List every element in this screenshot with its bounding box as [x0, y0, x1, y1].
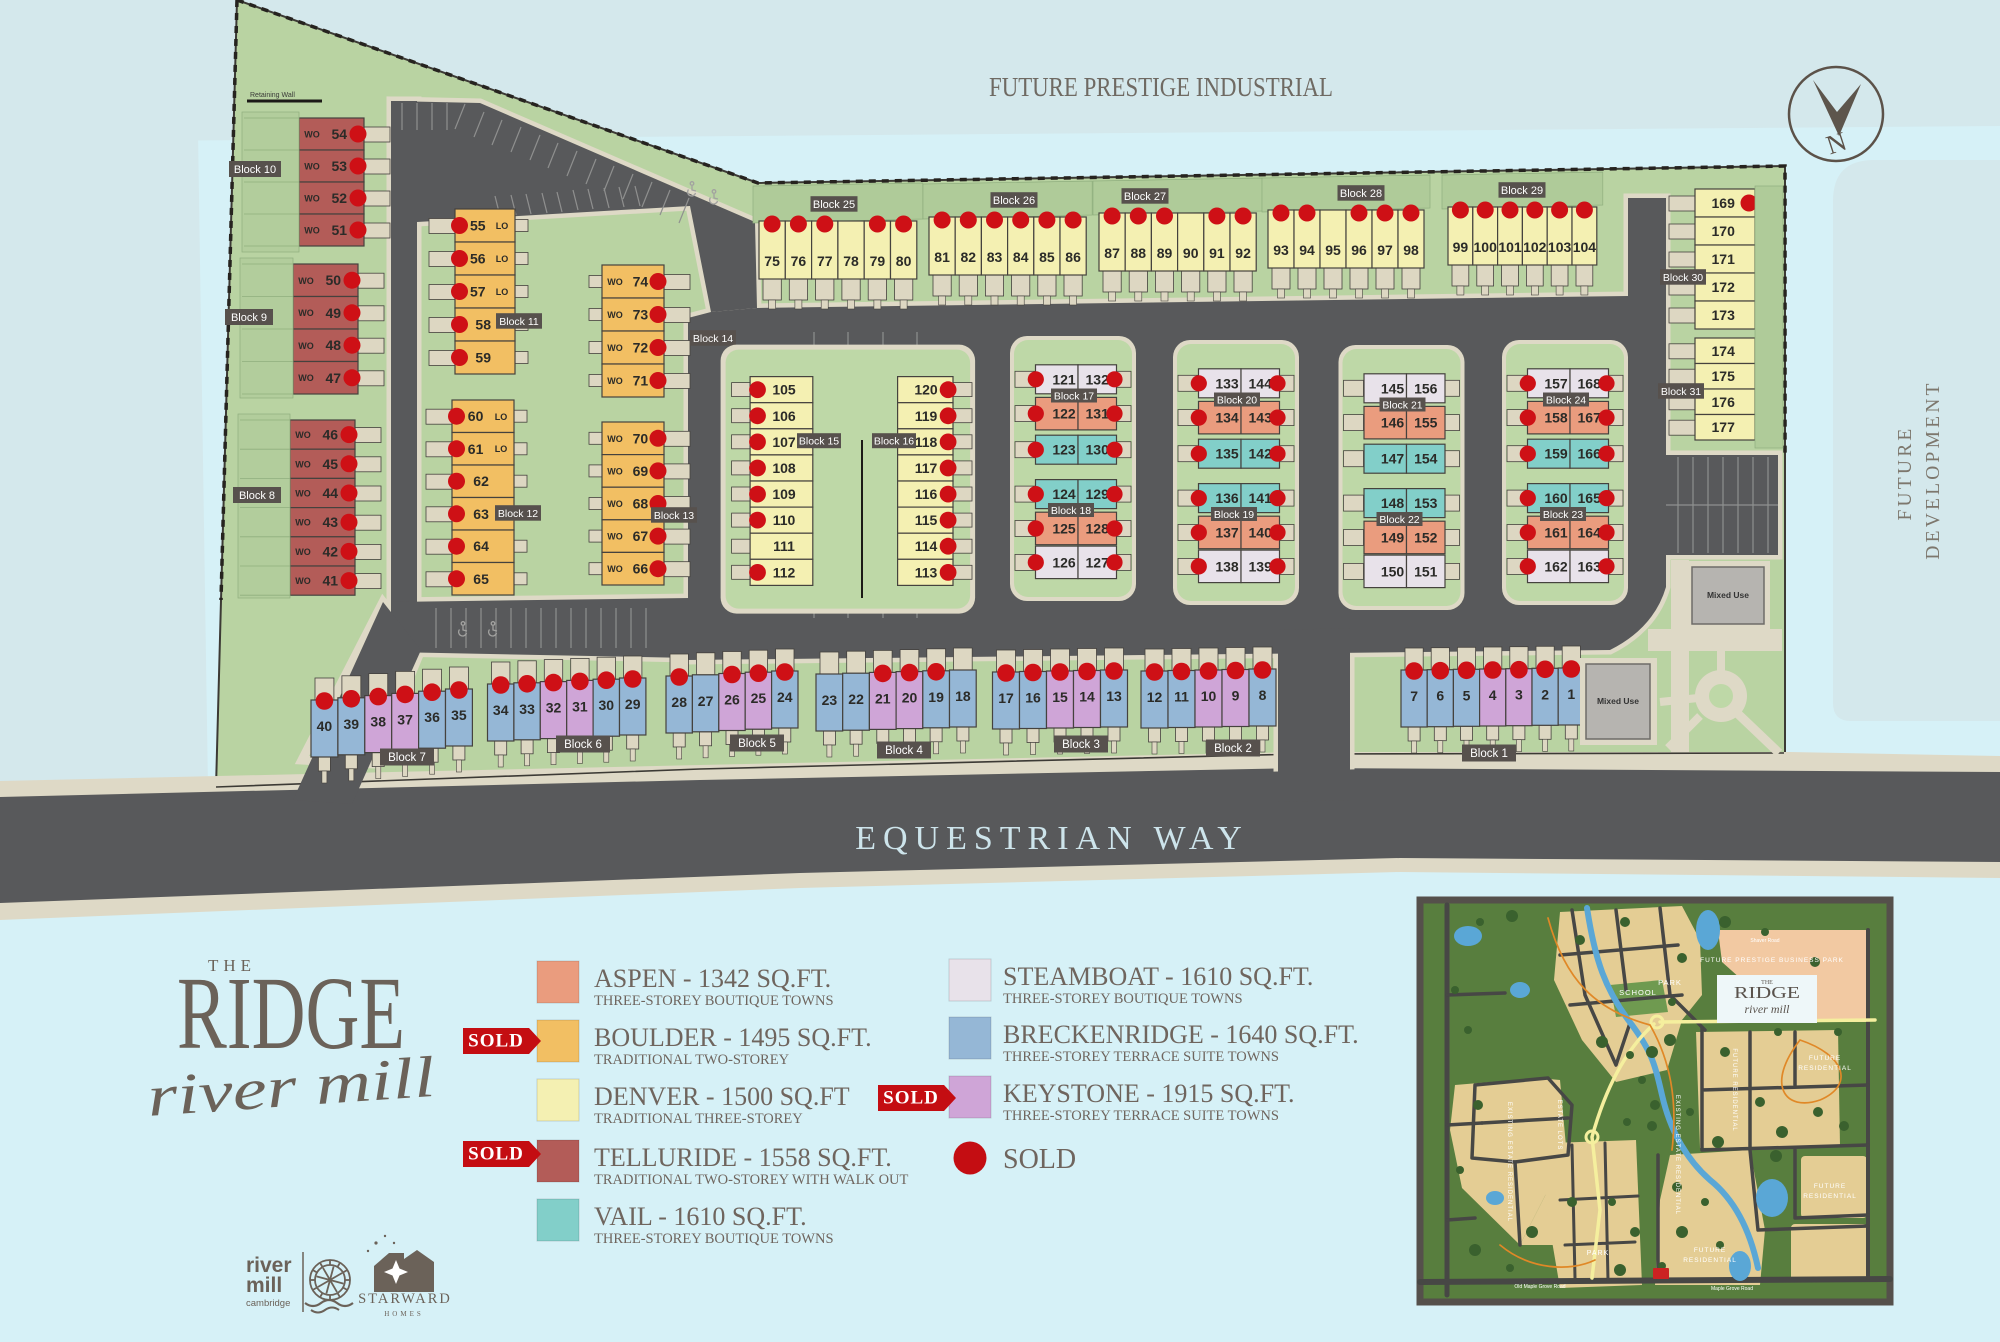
- svg-text:68: 68: [633, 496, 649, 512]
- svg-text:155: 155: [1414, 415, 1438, 431]
- svg-text:Block 25: Block 25: [813, 199, 855, 211]
- svg-text:102: 102: [1523, 239, 1547, 255]
- svg-text:101: 101: [1498, 239, 1522, 255]
- svg-text:73: 73: [633, 307, 649, 323]
- svg-text:HOMES: HOMES: [384, 1310, 424, 1318]
- svg-text:69: 69: [633, 463, 649, 479]
- svg-text:175: 175: [1712, 368, 1736, 384]
- svg-text:60: 60: [468, 408, 484, 424]
- svg-text:20: 20: [902, 690, 918, 706]
- svg-text:Block 14: Block 14: [693, 333, 733, 345]
- svg-text:BRECKENRIDGE - 1640 SQ.FT.: BRECKENRIDGE - 1640 SQ.FT.: [1003, 1020, 1359, 1049]
- svg-text:Block 21: Block 21: [1382, 400, 1422, 412]
- svg-text:Block 18: Block 18: [1051, 505, 1091, 517]
- svg-text:7: 7: [1410, 688, 1418, 704]
- svg-text:Block 2: Block 2: [1214, 743, 1252, 755]
- svg-text:10: 10: [1201, 688, 1217, 704]
- svg-text:river mill: river mill: [1745, 1002, 1791, 1016]
- svg-text:WO: WO: [607, 343, 623, 353]
- svg-text:44: 44: [323, 485, 339, 501]
- svg-text:38: 38: [370, 714, 386, 730]
- svg-text:114: 114: [915, 538, 938, 554]
- svg-text:WO: WO: [295, 489, 311, 499]
- svg-text:156: 156: [1414, 380, 1438, 396]
- svg-text:99: 99: [1453, 239, 1469, 255]
- svg-text:75: 75: [764, 253, 780, 269]
- svg-text:16: 16: [1025, 690, 1041, 706]
- svg-text:EQUESTRIAN WAY: EQUESTRIAN WAY: [855, 820, 1249, 857]
- svg-text:112: 112: [773, 564, 796, 580]
- svg-text:135: 135: [1215, 446, 1239, 462]
- svg-text:82: 82: [961, 249, 977, 265]
- svg-text:THREE-STOREY BOUTIQUE TOWNS: THREE-STOREY BOUTIQUE TOWNS: [594, 1231, 834, 1247]
- svg-text:LO: LO: [495, 412, 508, 422]
- svg-text:62: 62: [473, 473, 489, 489]
- svg-text:108: 108: [772, 460, 796, 476]
- svg-text:Block 1: Block 1: [1470, 748, 1508, 760]
- svg-text:12: 12: [1147, 689, 1163, 705]
- svg-text:171: 171: [1712, 251, 1736, 267]
- svg-text:96: 96: [1351, 242, 1367, 258]
- svg-text:80: 80: [896, 253, 912, 269]
- svg-text:47: 47: [326, 370, 342, 386]
- svg-text:Block 24: Block 24: [1546, 395, 1586, 407]
- svg-text:129: 129: [1086, 486, 1110, 502]
- svg-text:Block 9: Block 9: [231, 312, 267, 324]
- svg-text:105: 105: [772, 382, 796, 398]
- svg-text:WO: WO: [607, 310, 623, 320]
- svg-text:63: 63: [473, 506, 489, 522]
- svg-text:41: 41: [323, 573, 339, 589]
- svg-text:124: 124: [1052, 486, 1076, 502]
- svg-text:SOLD: SOLD: [468, 1144, 524, 1165]
- svg-text:ESTATE LOTS: ESTATE LOTS: [1556, 1100, 1562, 1151]
- svg-text:DEVELOPMENT: DEVELOPMENT: [1923, 380, 1944, 559]
- svg-text:123: 123: [1052, 442, 1076, 458]
- svg-text:81: 81: [934, 249, 950, 265]
- svg-text:9: 9: [1232, 688, 1240, 704]
- svg-text:166: 166: [1578, 446, 1602, 462]
- svg-text:WO: WO: [298, 341, 314, 351]
- svg-text:Mixed Use: Mixed Use: [1597, 696, 1639, 706]
- svg-text:Block 16: Block 16: [874, 436, 914, 448]
- svg-text:74: 74: [633, 274, 649, 290]
- svg-text:45: 45: [323, 456, 339, 472]
- svg-text:34: 34: [493, 702, 509, 718]
- svg-text:Block 10: Block 10: [234, 164, 276, 176]
- svg-text:PARK: PARK: [1587, 1250, 1610, 1257]
- svg-text:103: 103: [1548, 239, 1572, 255]
- svg-text:Mixed Use: Mixed Use: [1707, 590, 1749, 600]
- svg-text:Shaver Road: Shaver Road: [1750, 938, 1779, 944]
- svg-text:26: 26: [724, 692, 740, 708]
- svg-text:79: 79: [870, 253, 886, 269]
- svg-text:130: 130: [1086, 442, 1110, 458]
- svg-text:143: 143: [1249, 410, 1273, 426]
- svg-text:ASPEN - 1342 SQ.FT.: ASPEN - 1342 SQ.FT.: [594, 964, 831, 993]
- svg-text:46: 46: [323, 427, 339, 443]
- svg-text:94: 94: [1299, 242, 1315, 258]
- svg-text:167: 167: [1578, 410, 1602, 426]
- svg-text:76: 76: [791, 253, 807, 269]
- svg-text:100: 100: [1474, 239, 1498, 255]
- svg-text:24: 24: [777, 689, 793, 705]
- svg-text:48: 48: [326, 337, 342, 353]
- svg-text:FUTURE: FUTURE: [1694, 1247, 1726, 1254]
- svg-text:87: 87: [1104, 245, 1120, 261]
- svg-text:160: 160: [1544, 490, 1568, 506]
- svg-text:17: 17: [998, 690, 1014, 706]
- svg-text:Block 7: Block 7: [388, 752, 426, 764]
- svg-text:32: 32: [546, 700, 562, 716]
- svg-text:18: 18: [955, 688, 971, 704]
- svg-text:8: 8: [1259, 687, 1267, 703]
- svg-text:147: 147: [1381, 451, 1405, 467]
- svg-text:61: 61: [468, 441, 484, 457]
- svg-text:PARK: PARK: [1658, 978, 1682, 987]
- svg-text:140: 140: [1249, 525, 1273, 541]
- svg-text:WO: WO: [304, 194, 320, 204]
- svg-text:149: 149: [1381, 530, 1405, 546]
- svg-text:THREE-STOREY TERRACE SUITE TOW: THREE-STOREY TERRACE SUITE TOWNS: [1003, 1049, 1279, 1065]
- svg-text:29: 29: [625, 696, 641, 712]
- svg-text:FUTURE PRESTIGE INDUSTRIAL: FUTURE PRESTIGE INDUSTRIAL: [989, 72, 1333, 102]
- svg-text:122: 122: [1052, 406, 1076, 422]
- svg-text:120: 120: [914, 382, 938, 398]
- svg-text:SOLD: SOLD: [1003, 1144, 1076, 1175]
- svg-text:Block 4: Block 4: [885, 745, 923, 757]
- svg-text:52: 52: [332, 190, 348, 206]
- svg-text:164: 164: [1578, 525, 1602, 541]
- svg-text:LO: LO: [496, 221, 509, 231]
- svg-text:Block 22: Block 22: [1379, 514, 1419, 526]
- svg-text:127: 127: [1086, 554, 1110, 570]
- svg-text:Block 23: Block 23: [1543, 509, 1583, 521]
- svg-text:33: 33: [519, 701, 535, 717]
- svg-text:144: 144: [1249, 375, 1273, 391]
- svg-text:83: 83: [987, 249, 1003, 265]
- svg-text:Block 13: Block 13: [654, 510, 694, 522]
- svg-text:RESIDENTIAL: RESIDENTIAL: [1803, 1193, 1857, 1200]
- svg-text:23: 23: [822, 692, 838, 708]
- svg-text:Block 31: Block 31: [1661, 386, 1701, 398]
- svg-text:134: 134: [1215, 410, 1239, 426]
- svg-text:25: 25: [751, 690, 767, 706]
- svg-text:35: 35: [451, 707, 467, 723]
- svg-text:169: 169: [1712, 195, 1736, 211]
- svg-text:Block 8: Block 8: [239, 490, 275, 502]
- svg-text:49: 49: [326, 305, 342, 321]
- svg-text:56: 56: [470, 251, 486, 267]
- svg-text:65: 65: [473, 571, 489, 587]
- svg-text:136: 136: [1215, 490, 1239, 506]
- svg-text:Block 3: Block 3: [1062, 739, 1100, 751]
- svg-text:53: 53: [332, 158, 348, 174]
- svg-text:5: 5: [1463, 687, 1471, 703]
- svg-text:118: 118: [915, 434, 938, 450]
- svg-text:WO: WO: [607, 277, 623, 287]
- svg-text:116: 116: [915, 486, 938, 502]
- svg-text:STARWARD: STARWARD: [358, 1291, 452, 1307]
- svg-text:117: 117: [915, 460, 938, 476]
- svg-text:Block 30: Block 30: [1663, 272, 1703, 284]
- svg-text:LO: LO: [496, 254, 509, 264]
- svg-text:173: 173: [1712, 307, 1736, 323]
- svg-text:142: 142: [1249, 446, 1273, 462]
- svg-text:163: 163: [1578, 558, 1602, 574]
- svg-text:106: 106: [772, 408, 796, 424]
- svg-text:88: 88: [1131, 245, 1147, 261]
- svg-text:Retaining Wall: Retaining Wall: [250, 92, 295, 99]
- svg-text:152: 152: [1414, 530, 1438, 546]
- svg-text:EXISTING ESTATE RESIDENTIAL: EXISTING ESTATE RESIDENTIAL: [1674, 1095, 1680, 1215]
- svg-text:91: 91: [1209, 245, 1225, 261]
- svg-text:WO: WO: [295, 459, 311, 469]
- svg-text:WO: WO: [607, 376, 623, 386]
- svg-text:FUTURE: FUTURE: [1814, 1183, 1846, 1190]
- svg-text:125: 125: [1052, 521, 1076, 537]
- svg-text:19: 19: [928, 689, 944, 705]
- svg-text:126: 126: [1052, 554, 1076, 570]
- svg-text:THREE-STOREY TERRACE SUITE TOW: THREE-STOREY TERRACE SUITE TOWNS: [1003, 1108, 1279, 1124]
- svg-text:31: 31: [572, 698, 588, 714]
- svg-text:104: 104: [1573, 239, 1597, 255]
- svg-text:84: 84: [1013, 249, 1029, 265]
- svg-text:WO: WO: [607, 434, 623, 444]
- svg-text:77: 77: [817, 253, 833, 269]
- svg-text:TRADITIONAL TWO-STOREY WITH W: TRADITIONAL TWO-STOREY WITH WALK OUT: [594, 1172, 909, 1188]
- svg-text:4: 4: [1489, 687, 1497, 703]
- svg-text:THE: THE: [1761, 980, 1773, 986]
- svg-text:VAIL - 1610 SQ.FT.: VAIL - 1610 SQ.FT.: [594, 1202, 807, 1231]
- svg-text:WO: WO: [607, 532, 623, 542]
- svg-text:FUTURE: FUTURE: [1895, 425, 1916, 520]
- svg-text:119: 119: [915, 408, 938, 424]
- svg-text:92: 92: [1235, 245, 1251, 261]
- svg-text:RESIDENTIAL: RESIDENTIAL: [1683, 1257, 1737, 1264]
- svg-text:93: 93: [1273, 242, 1289, 258]
- svg-text:159: 159: [1544, 446, 1568, 462]
- svg-text:132: 132: [1086, 371, 1110, 387]
- svg-text:WO: WO: [295, 430, 311, 440]
- svg-text:113: 113: [915, 564, 938, 580]
- svg-text:66: 66: [633, 561, 649, 577]
- svg-text:86: 86: [1065, 249, 1081, 265]
- svg-text:WO: WO: [295, 576, 311, 586]
- svg-text:58: 58: [475, 317, 491, 333]
- svg-text:WO: WO: [607, 499, 623, 509]
- svg-text:Block 29: Block 29: [1501, 185, 1543, 197]
- svg-text:22: 22: [848, 691, 864, 707]
- svg-text:15: 15: [1052, 689, 1068, 705]
- svg-text:89: 89: [1157, 245, 1173, 261]
- svg-text:57: 57: [470, 284, 486, 300]
- svg-text:THREE-STOREY BOUTIQUE TOWNS: THREE-STOREY BOUTIQUE TOWNS: [594, 993, 834, 1009]
- svg-text:170: 170: [1712, 223, 1736, 239]
- svg-text:TRADITIONAL TWO-STOREY: TRADITIONAL TWO-STOREY: [594, 1052, 790, 1068]
- svg-text:110: 110: [773, 512, 796, 528]
- svg-text:SCHOOL: SCHOOL: [1619, 988, 1657, 997]
- svg-text:154: 154: [1414, 451, 1438, 467]
- svg-text:Block 15: Block 15: [799, 436, 839, 448]
- svg-text:97: 97: [1377, 242, 1393, 258]
- svg-text:WO: WO: [298, 308, 314, 318]
- svg-text:BOULDER - 1495 SQ.FT.: BOULDER - 1495 SQ.FT.: [594, 1023, 872, 1052]
- svg-text:121: 121: [1052, 371, 1076, 387]
- svg-text:Maple Grove Road: Maple Grove Road: [1711, 1286, 1753, 1292]
- svg-text:Block 11: Block 11: [499, 316, 539, 328]
- svg-text:172: 172: [1712, 279, 1736, 295]
- svg-text:138: 138: [1215, 558, 1239, 574]
- svg-text:54: 54: [332, 126, 348, 142]
- svg-text:85: 85: [1039, 249, 1055, 265]
- svg-text:137: 137: [1215, 525, 1239, 541]
- svg-text:145: 145: [1381, 380, 1405, 396]
- svg-text:64: 64: [473, 538, 489, 554]
- svg-text:40: 40: [317, 718, 333, 734]
- svg-text:14: 14: [1079, 689, 1095, 705]
- svg-text:SOLD: SOLD: [468, 1031, 524, 1052]
- svg-text:Block 19: Block 19: [1214, 509, 1254, 521]
- svg-text:TELLURIDE - 1558 SQ.FT.: TELLURIDE - 1558 SQ.FT.: [594, 1143, 892, 1172]
- svg-text:WO: WO: [298, 373, 314, 383]
- svg-text:146: 146: [1381, 415, 1405, 431]
- svg-text:133: 133: [1215, 375, 1239, 391]
- svg-text:Block 6: Block 6: [564, 739, 602, 751]
- svg-text:50: 50: [326, 272, 342, 288]
- svg-text:43: 43: [323, 514, 339, 530]
- svg-text:Block 5: Block 5: [738, 738, 776, 750]
- svg-text:Block 12: Block 12: [498, 508, 538, 520]
- svg-text:FUTURE RESIDENTIAL: FUTURE RESIDENTIAL: [1731, 1048, 1737, 1131]
- svg-text:109: 109: [772, 486, 796, 502]
- svg-text:SOLD: SOLD: [883, 1088, 939, 1109]
- svg-text:162: 162: [1544, 558, 1568, 574]
- svg-text:177: 177: [1712, 419, 1736, 435]
- svg-text:STEAMBOAT - 1610 SQ.FT.: STEAMBOAT - 1610 SQ.FT.: [1003, 962, 1313, 991]
- svg-text:FUTURE PRESTIGE BUSINESS PARK: FUTURE PRESTIGE BUSINESS PARK: [1700, 957, 1844, 964]
- svg-text:Block 20: Block 20: [1217, 395, 1257, 407]
- svg-text:WO: WO: [304, 226, 320, 236]
- svg-text:107: 107: [772, 434, 796, 450]
- svg-text:141: 141: [1249, 490, 1273, 506]
- svg-text:151: 151: [1414, 563, 1438, 579]
- svg-text:Old Maple Grove Road: Old Maple Grove Road: [1514, 1284, 1565, 1290]
- svg-text:3: 3: [1515, 687, 1523, 703]
- svg-text:70: 70: [633, 430, 649, 446]
- svg-text:148: 148: [1381, 495, 1405, 511]
- svg-text:LO: LO: [495, 444, 508, 454]
- svg-text:111: 111: [773, 538, 795, 554]
- svg-text:11: 11: [1174, 689, 1189, 705]
- svg-text:30: 30: [599, 697, 615, 713]
- svg-text:71: 71: [633, 373, 649, 389]
- svg-text:Block 27: Block 27: [1124, 191, 1166, 203]
- svg-text:128: 128: [1086, 521, 1110, 537]
- svg-text:42: 42: [323, 543, 339, 559]
- svg-text:67: 67: [633, 528, 649, 544]
- svg-text:13: 13: [1106, 688, 1122, 704]
- svg-text:WO: WO: [295, 547, 311, 557]
- svg-text:72: 72: [633, 340, 649, 356]
- svg-text:153: 153: [1414, 495, 1438, 511]
- svg-text:mill: mill: [246, 1274, 282, 1297]
- svg-text:36: 36: [424, 709, 440, 725]
- svg-text:EXISTING ESTATE RESIDENTIAL: EXISTING ESTATE RESIDENTIAL: [1506, 1102, 1512, 1222]
- svg-text:176: 176: [1712, 394, 1736, 410]
- svg-text:150: 150: [1381, 563, 1405, 579]
- svg-text:WO: WO: [607, 466, 623, 476]
- svg-text:27: 27: [698, 693, 714, 709]
- svg-text:TRADITIONAL THREE-STOREY: TRADITIONAL THREE-STOREY: [594, 1111, 803, 1127]
- svg-text:98: 98: [1403, 242, 1419, 258]
- svg-text:59: 59: [475, 350, 491, 366]
- svg-text:Block 17: Block 17: [1054, 391, 1094, 403]
- svg-text:FUTURE: FUTURE: [1809, 1055, 1841, 1062]
- svg-text:131: 131: [1086, 406, 1110, 422]
- svg-text:WO: WO: [607, 564, 623, 574]
- svg-text:55: 55: [470, 218, 486, 234]
- svg-text:168: 168: [1578, 375, 1602, 391]
- svg-text:Block 26: Block 26: [993, 195, 1035, 207]
- svg-text:39: 39: [344, 716, 360, 732]
- svg-text:WO: WO: [298, 276, 314, 286]
- svg-text:2: 2: [1541, 686, 1549, 702]
- svg-text:21: 21: [875, 690, 891, 706]
- svg-text:115: 115: [915, 512, 938, 528]
- svg-text:1: 1: [1567, 686, 1575, 702]
- svg-text:161: 161: [1544, 525, 1568, 541]
- svg-text:WO: WO: [295, 518, 311, 528]
- svg-text:28: 28: [671, 694, 687, 710]
- svg-text:157: 157: [1544, 375, 1568, 391]
- svg-text:139: 139: [1249, 558, 1273, 574]
- svg-text:LO: LO: [496, 287, 509, 297]
- svg-text:6: 6: [1436, 688, 1444, 704]
- svg-text:DENVER - 1500 SQ.FT: DENVER - 1500 SQ.FT: [594, 1082, 850, 1111]
- svg-text:RESIDENTIAL: RESIDENTIAL: [1798, 1065, 1852, 1072]
- svg-text:95: 95: [1325, 242, 1341, 258]
- svg-text:cambridge: cambridge: [246, 1298, 290, 1309]
- svg-text:37: 37: [397, 711, 413, 727]
- svg-text:78: 78: [843, 253, 859, 269]
- svg-text:174: 174: [1712, 343, 1736, 359]
- svg-text:165: 165: [1578, 490, 1602, 506]
- svg-text:51: 51: [332, 222, 348, 238]
- svg-text:WO: WO: [304, 162, 320, 172]
- svg-text:158: 158: [1544, 410, 1568, 426]
- svg-text:90: 90: [1183, 245, 1199, 261]
- svg-text:THREE-STOREY BOUTIQUE TOWNS: THREE-STOREY BOUTIQUE TOWNS: [1003, 991, 1243, 1007]
- svg-text:Block 28: Block 28: [1340, 188, 1382, 200]
- svg-text:KEYSTONE - 1915 SQ.FT.: KEYSTONE - 1915 SQ.FT.: [1003, 1079, 1295, 1108]
- svg-text:WO: WO: [304, 130, 320, 140]
